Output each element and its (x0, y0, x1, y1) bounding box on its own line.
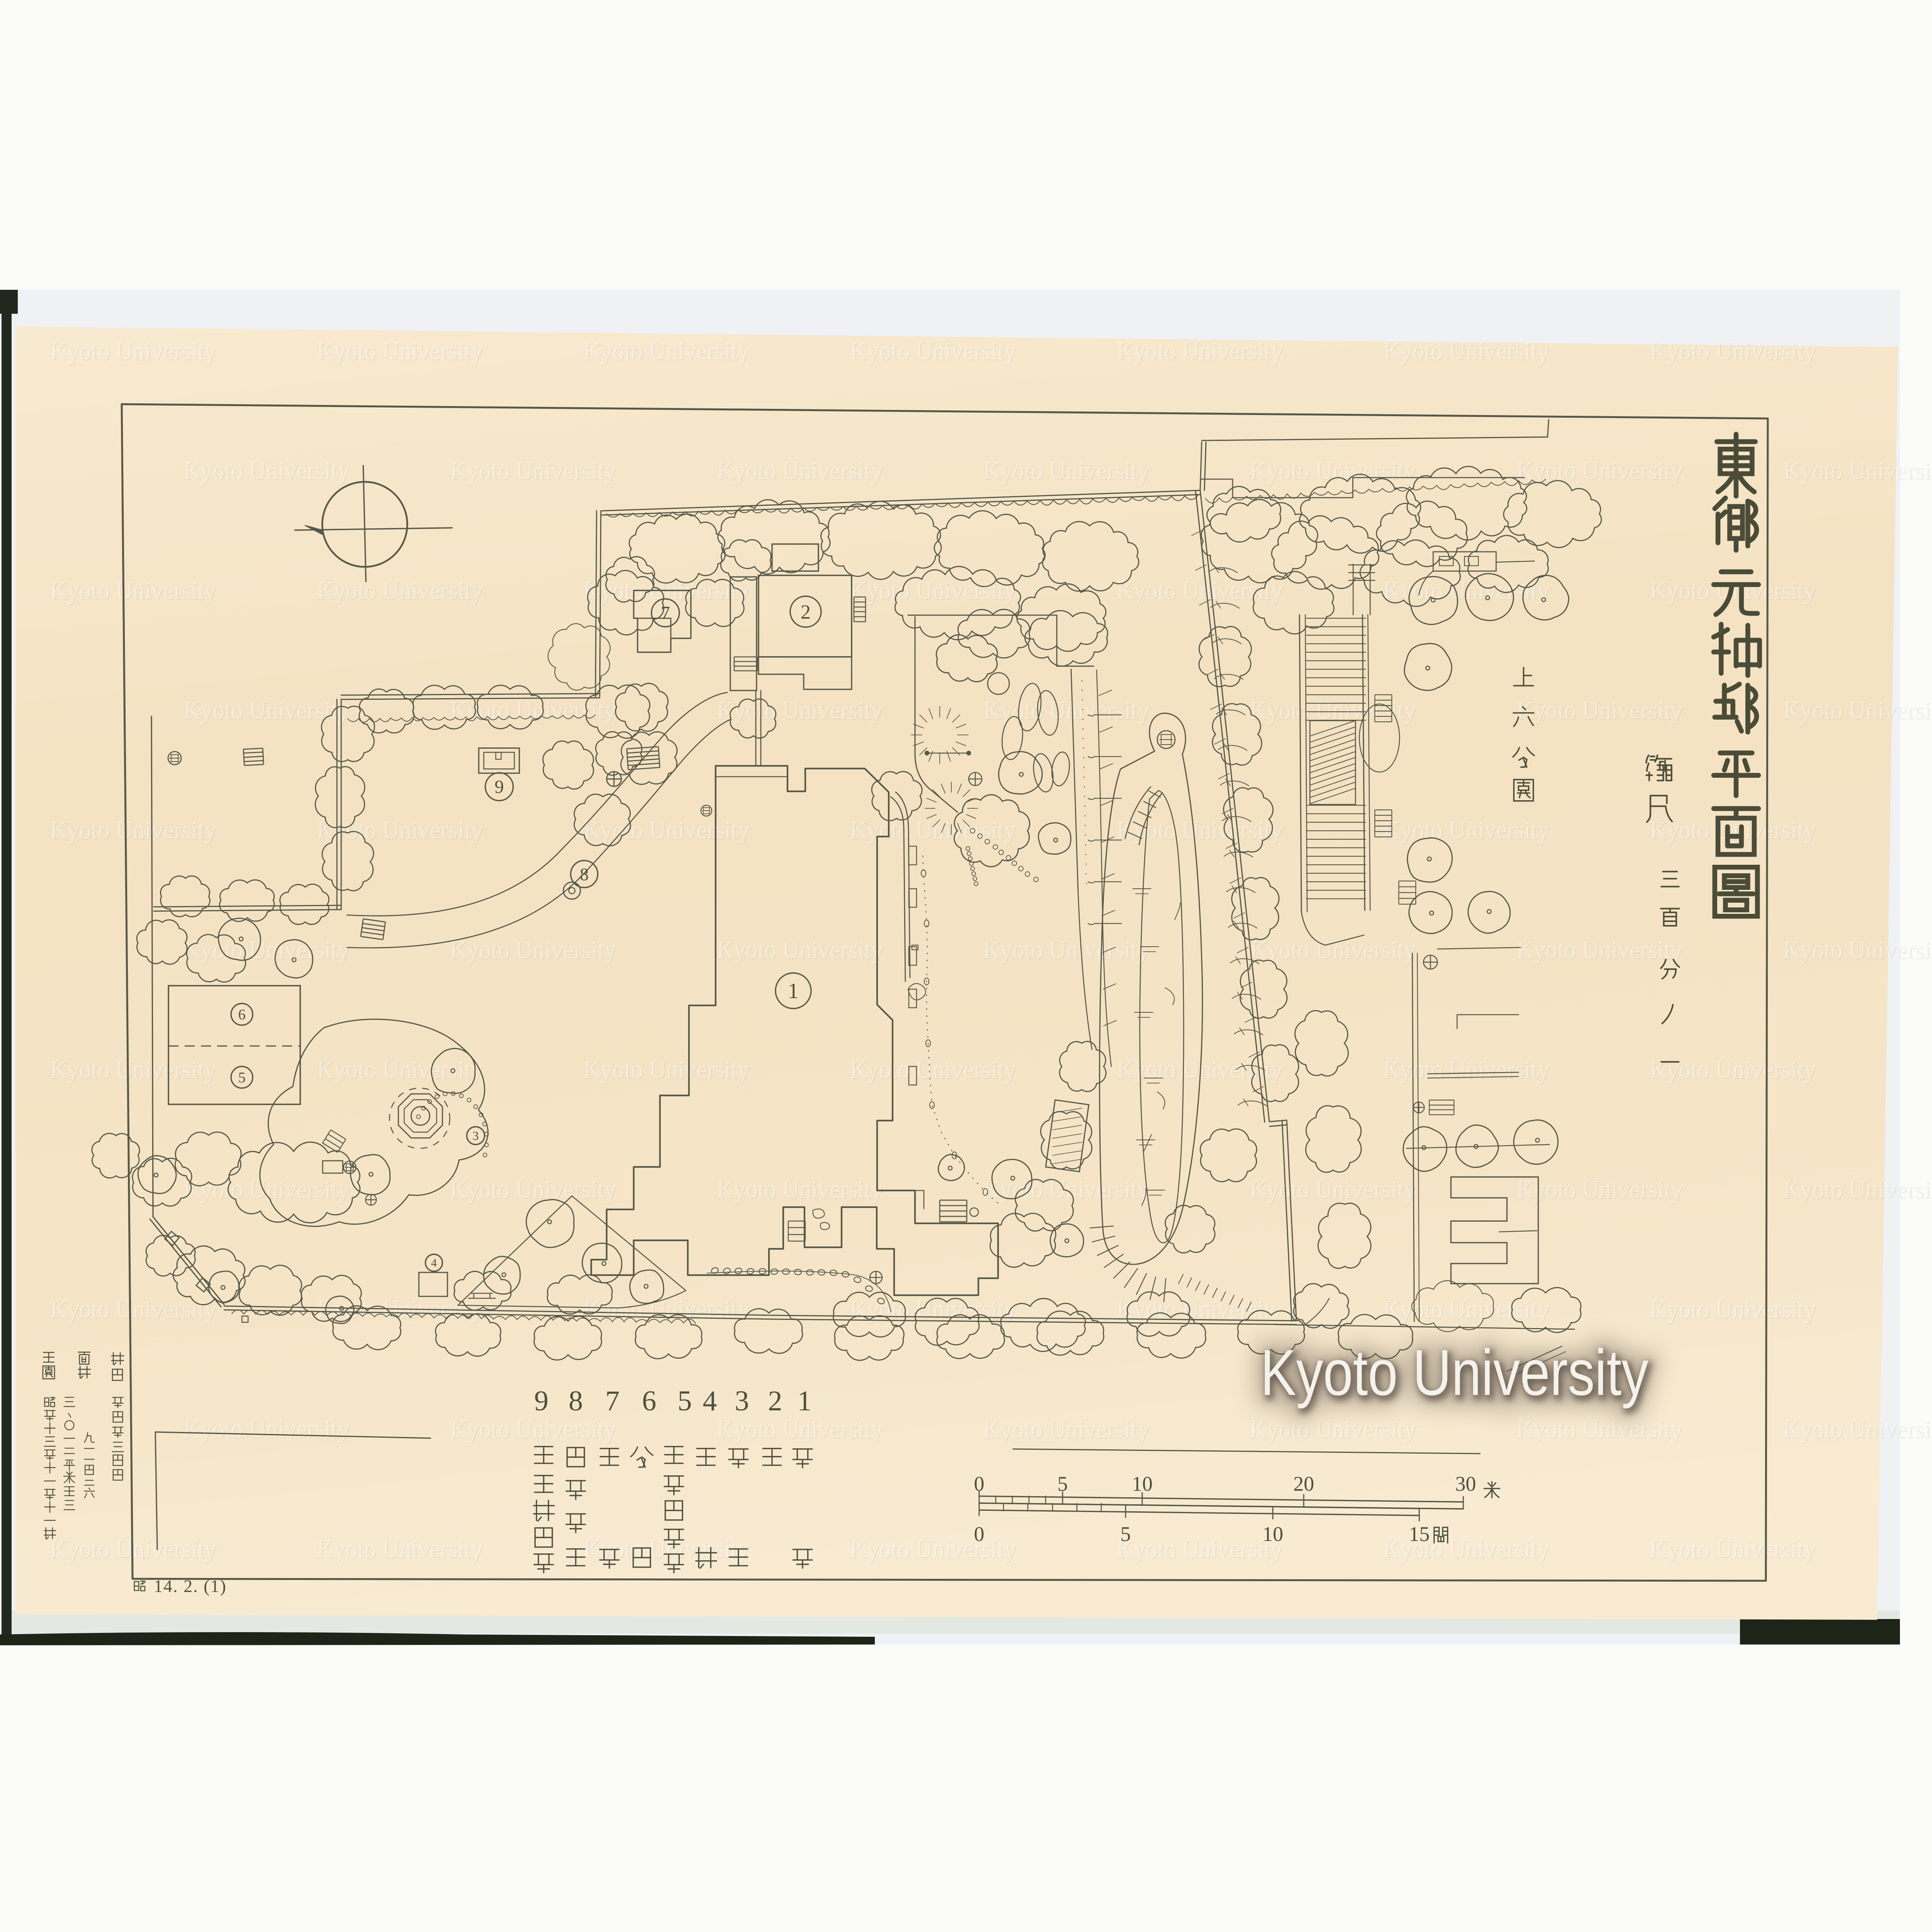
svg-text:Kyoto University: Kyoto University (450, 936, 616, 964)
svg-text:Kyoto University: Kyoto University (583, 337, 750, 365)
svg-text:7: 7 (605, 1385, 620, 1417)
svg-text:20: 20 (1293, 1472, 1314, 1495)
svg-text:Kyoto University: Kyoto University (1250, 1175, 1416, 1204)
svg-text:Kyoto University: Kyoto University (717, 696, 883, 724)
svg-text:Kyoto University: Kyoto University (450, 1415, 616, 1443)
svg-text:Kyoto University: Kyoto University (184, 1415, 350, 1443)
svg-text:Kyoto University: Kyoto University (1383, 337, 1549, 365)
svg-text:Kyoto University: Kyoto University (50, 1295, 216, 1323)
svg-text:Kyoto University: Kyoto University (583, 1056, 750, 1084)
svg-text:Kyoto University: Kyoto University (1783, 696, 1932, 724)
svg-text:Kyoto University: Kyoto University (1783, 457, 1932, 485)
svg-text:Kyoto University: Kyoto University (850, 816, 1016, 844)
svg-text:Kyoto University: Kyoto University (1517, 1415, 1683, 1443)
svg-text:6: 6 (238, 1007, 246, 1023)
svg-text:5: 5 (238, 1070, 246, 1086)
svg-text:Kyoto University: Kyoto University (583, 816, 750, 844)
svg-text:Kyoto University: Kyoto University (717, 1415, 883, 1443)
svg-text:Kyoto University: Kyoto University (184, 696, 350, 724)
svg-text:4: 4 (431, 1257, 437, 1269)
svg-text:Kyoto University: Kyoto University (1383, 1056, 1549, 1084)
svg-text:6: 6 (642, 1385, 656, 1417)
svg-text:5: 5 (678, 1385, 692, 1417)
svg-text:Kyoto University: Kyoto University (717, 1175, 883, 1204)
svg-text:Kyoto University: Kyoto University (1117, 577, 1283, 605)
svg-text:Kyoto University: Kyoto University (850, 337, 1016, 365)
svg-text:Kyoto University: Kyoto University (1117, 1535, 1283, 1563)
svg-text:3: 3 (735, 1385, 749, 1417)
svg-text:Kyoto University: Kyoto University (1783, 936, 1932, 964)
svg-text:Kyoto University: Kyoto University (1250, 1415, 1416, 1443)
svg-text:Kyoto University: Kyoto University (50, 1056, 216, 1084)
svg-text:Kyoto University: Kyoto University (717, 457, 883, 485)
svg-text:8: 8 (569, 1385, 583, 1417)
svg-text:0: 0 (974, 1522, 985, 1546)
svg-text:Kyoto University: Kyoto University (1650, 1535, 1816, 1563)
svg-text:Kyoto University: Kyoto University (1250, 457, 1416, 485)
svg-text:5: 5 (1058, 1472, 1068, 1495)
svg-text:Kyoto University: Kyoto University (1517, 936, 1683, 964)
svg-text:4: 4 (703, 1385, 717, 1417)
svg-text:Kyoto University: Kyoto University (1250, 936, 1416, 964)
svg-text:Kyoto University: Kyoto University (1783, 1415, 1932, 1443)
svg-text:0: 0 (974, 1472, 985, 1495)
svg-text:Kyoto University: Kyoto University (983, 936, 1150, 964)
svg-text:10: 10 (1132, 1472, 1153, 1495)
svg-text:14. 2. (1): 14. 2. (1) (154, 1576, 227, 1596)
svg-text:Kyoto University: Kyoto University (50, 577, 216, 605)
svg-text:Kyoto University: Kyoto University (983, 1175, 1150, 1204)
svg-text:15: 15 (1409, 1522, 1430, 1546)
svg-text:Kyoto University: Kyoto University (850, 1056, 1016, 1084)
svg-text:Kyoto University: Kyoto University (184, 457, 350, 485)
svg-text:Kyoto University: Kyoto University (450, 1175, 616, 1204)
svg-text:Kyoto University: Kyoto University (1650, 1295, 1816, 1323)
svg-text:Kyoto University: Kyoto University (317, 577, 483, 605)
svg-text:Kyoto University: Kyoto University (1783, 1175, 1932, 1204)
svg-text:30: 30 (1455, 1472, 1476, 1495)
svg-text:Kyoto University: Kyoto University (1117, 337, 1283, 365)
svg-text:Kyoto University: Kyoto University (184, 936, 350, 964)
svg-text:Kyoto University: Kyoto University (450, 457, 616, 485)
svg-text:Kyoto University: Kyoto University (317, 1535, 483, 1563)
svg-text:Kyoto University: Kyoto University (1650, 1056, 1816, 1084)
svg-text:Kyoto University: Kyoto University (717, 936, 883, 964)
svg-text:Kyoto University: Kyoto University (1117, 816, 1283, 844)
svg-text:Kyoto University: Kyoto University (1517, 1175, 1683, 1204)
svg-text:Kyoto University: Kyoto University (850, 1535, 1016, 1563)
svg-text:10: 10 (1262, 1522, 1283, 1546)
svg-text:Kyoto University: Kyoto University (317, 337, 483, 365)
svg-text:Kyoto University: Kyoto University (50, 816, 216, 844)
svg-text:Kyoto University: Kyoto University (50, 337, 216, 365)
svg-text:1: 1 (798, 1385, 812, 1417)
svg-text:Kyoto University: Kyoto University (184, 1175, 350, 1204)
svg-text:Kyoto University: Kyoto University (1260, 1336, 1648, 1409)
svg-text:Kyoto University: Kyoto University (983, 457, 1150, 485)
svg-text:Kyoto University: Kyoto University (1383, 1295, 1549, 1323)
svg-text:8: 8 (580, 864, 589, 884)
svg-text:3: 3 (473, 1129, 479, 1143)
svg-text:Kyoto University: Kyoto University (983, 1415, 1150, 1443)
svg-text:9: 9 (534, 1385, 549, 1417)
svg-text:Kyoto University: Kyoto University (317, 1056, 483, 1084)
svg-text:1: 1 (788, 979, 799, 1003)
svg-text:Kyoto University: Kyoto University (850, 577, 1016, 605)
svg-text:Kyoto University: Kyoto University (1383, 816, 1549, 844)
svg-text:2: 2 (768, 1385, 782, 1417)
svg-text:Kyoto University: Kyoto University (583, 1295, 750, 1323)
svg-text:Kyoto University: Kyoto University (1650, 337, 1816, 365)
svg-text:Kyoto University: Kyoto University (1383, 1535, 1549, 1563)
svg-text:Kyoto University: Kyoto University (1517, 457, 1683, 485)
svg-text:9: 9 (495, 777, 504, 797)
svg-text:2: 2 (801, 601, 811, 623)
svg-text:Kyoto University: Kyoto University (1517, 696, 1683, 724)
svg-text:5: 5 (1121, 1522, 1131, 1546)
